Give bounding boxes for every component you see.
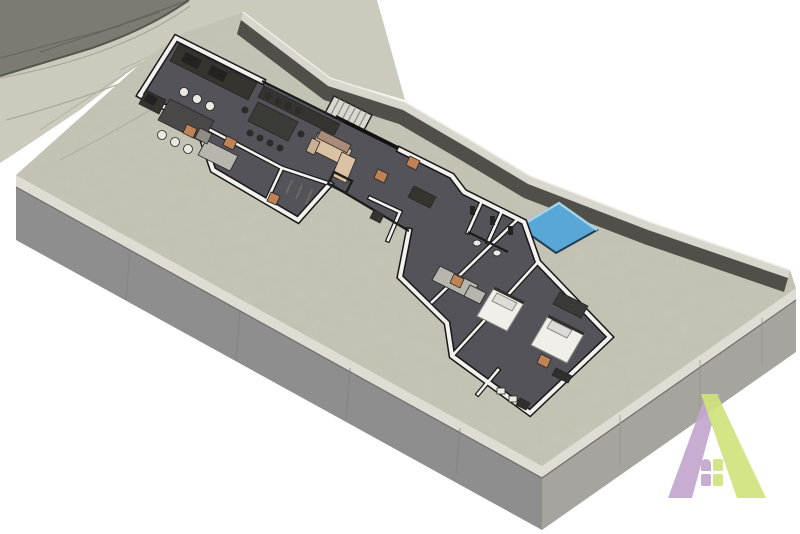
render-canvas xyxy=(0,0,800,534)
logo-pane-bl xyxy=(701,474,711,486)
logo-pane-tr xyxy=(713,459,723,471)
logo-pane-br xyxy=(713,474,723,486)
floor-plan-render xyxy=(0,0,800,534)
logo-arch-pane xyxy=(701,459,711,471)
